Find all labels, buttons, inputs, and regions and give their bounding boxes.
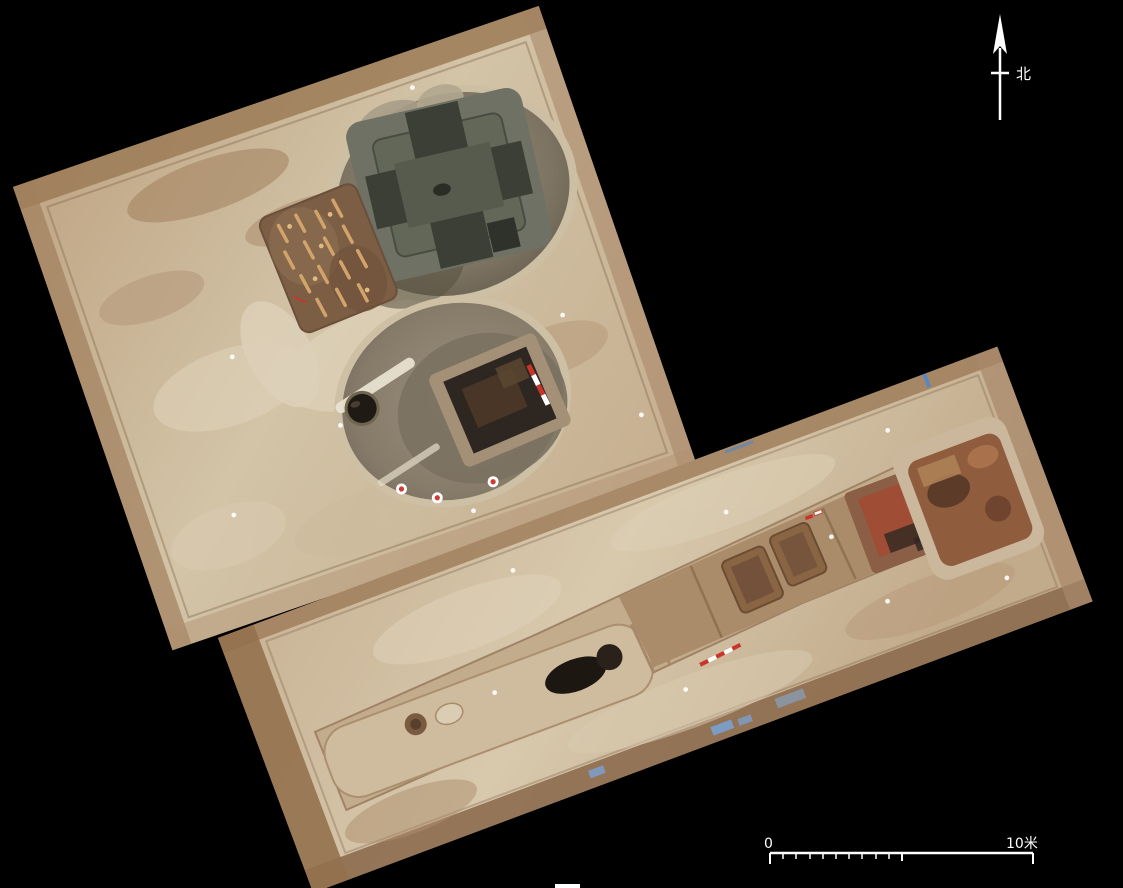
figure-canvas: 北 0 10米 xyxy=(0,0,1123,888)
scale-max-label: 10米 xyxy=(1006,836,1038,852)
caption-fragment xyxy=(555,884,580,888)
north-label: 北 xyxy=(1016,65,1031,83)
site-orthophoto: 北 0 10米 xyxy=(0,0,1123,888)
scale-zero-label: 0 xyxy=(764,836,773,852)
